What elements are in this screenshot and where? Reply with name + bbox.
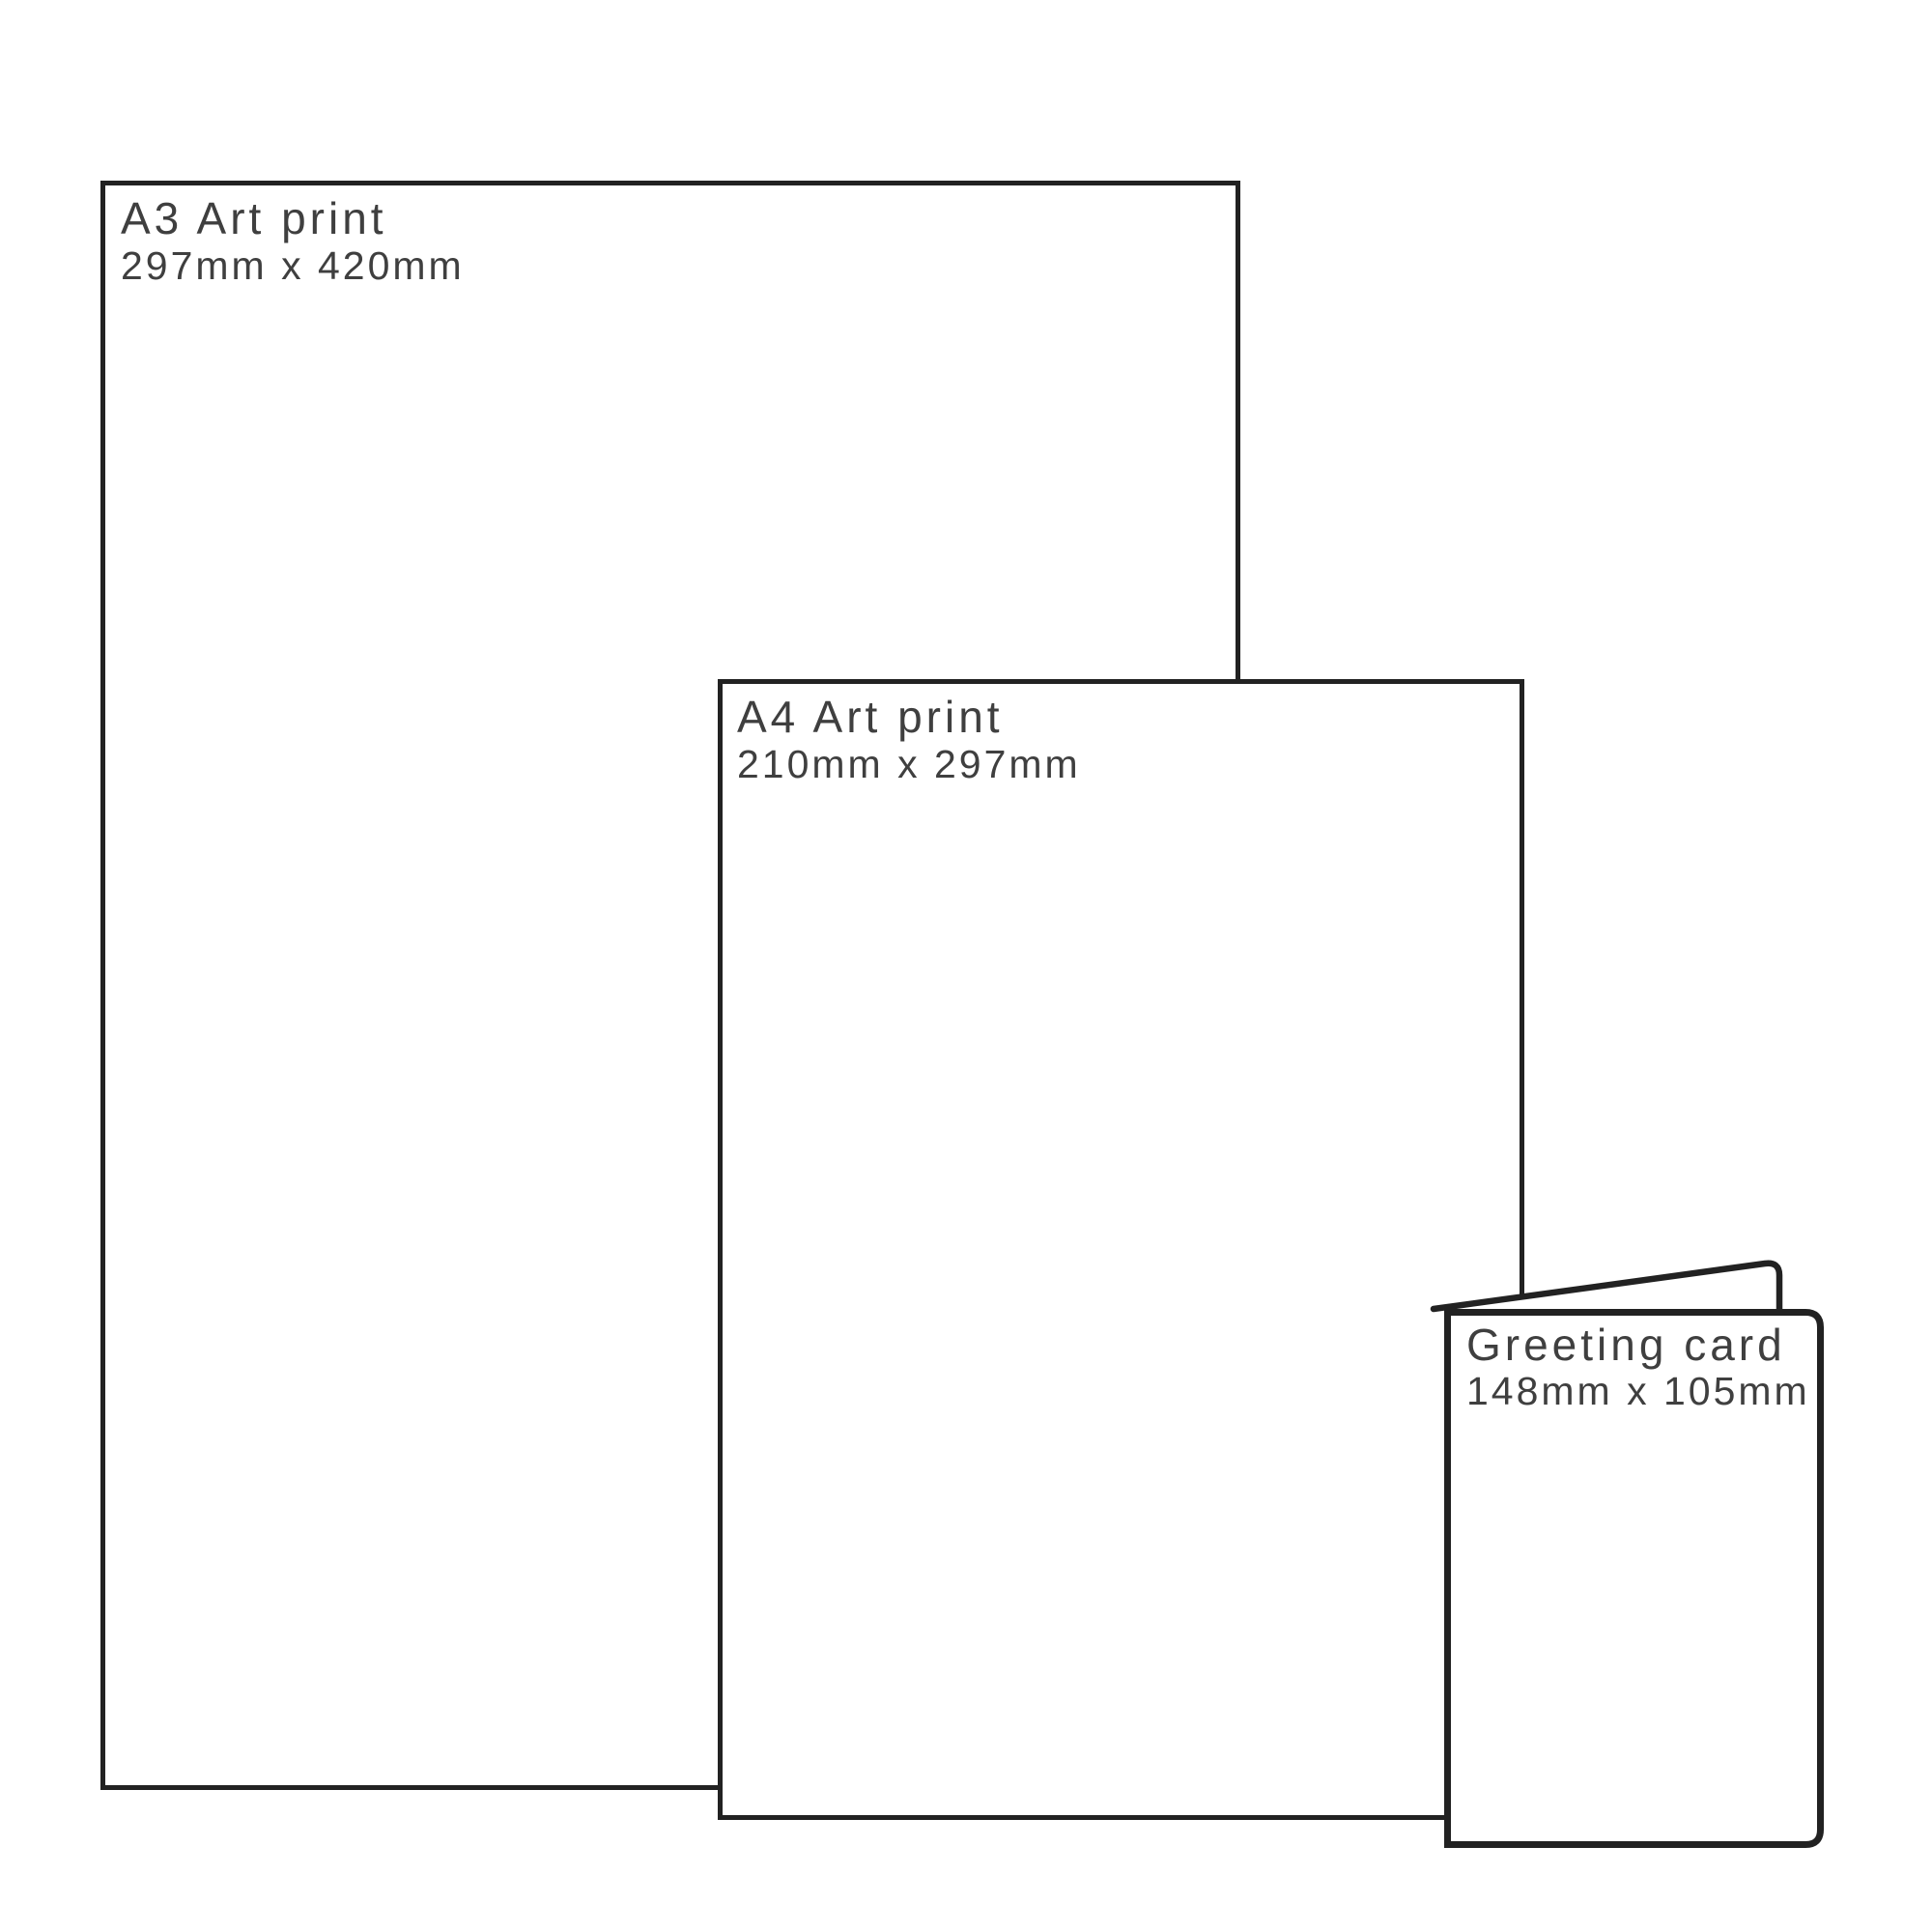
a3-sheet-dimensions: 297mm x 420mm	[121, 243, 465, 288]
size-comparison-diagram: A3 Art print 297mm x 420mm A4 Art print …	[0, 0, 1932, 1932]
a4-sheet-title: A4 Art print	[737, 692, 1004, 742]
a4-sheet-outline	[721, 682, 1522, 1818]
greeting-card-dimensions: 148mm x 105mm	[1466, 1369, 1810, 1413]
a3-sheet-title: A3 Art print	[121, 193, 387, 243]
greeting-card: Greeting card 148mm x 105mm	[1434, 1264, 1821, 1845]
size-comparison-canvas: A3 Art print 297mm x 420mm A4 Art print …	[0, 0, 1932, 1932]
a4-sheet-dimensions: 210mm x 297mm	[737, 742, 1081, 786]
greeting-card-title: Greeting card	[1466, 1320, 1786, 1370]
a4-sheet: A4 Art print 210mm x 297mm	[721, 682, 1522, 1818]
